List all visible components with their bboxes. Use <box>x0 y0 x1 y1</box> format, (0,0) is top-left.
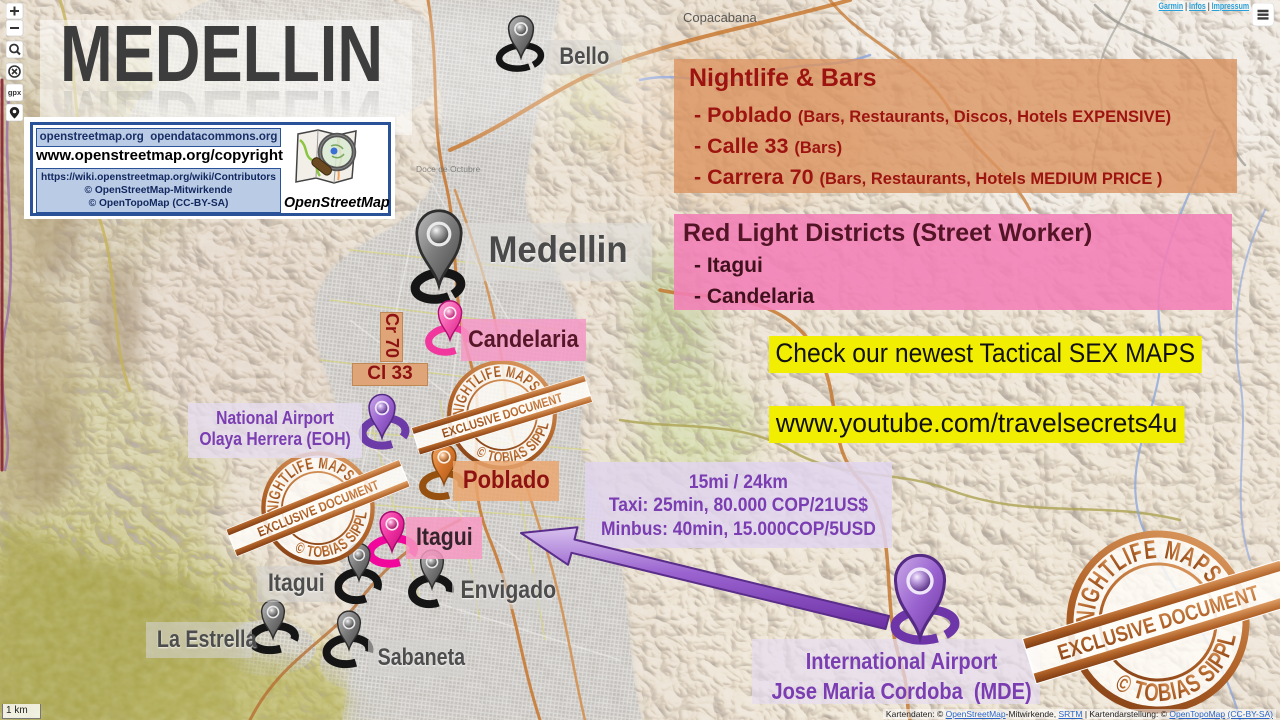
svg-text:gpx: gpx <box>8 88 22 97</box>
